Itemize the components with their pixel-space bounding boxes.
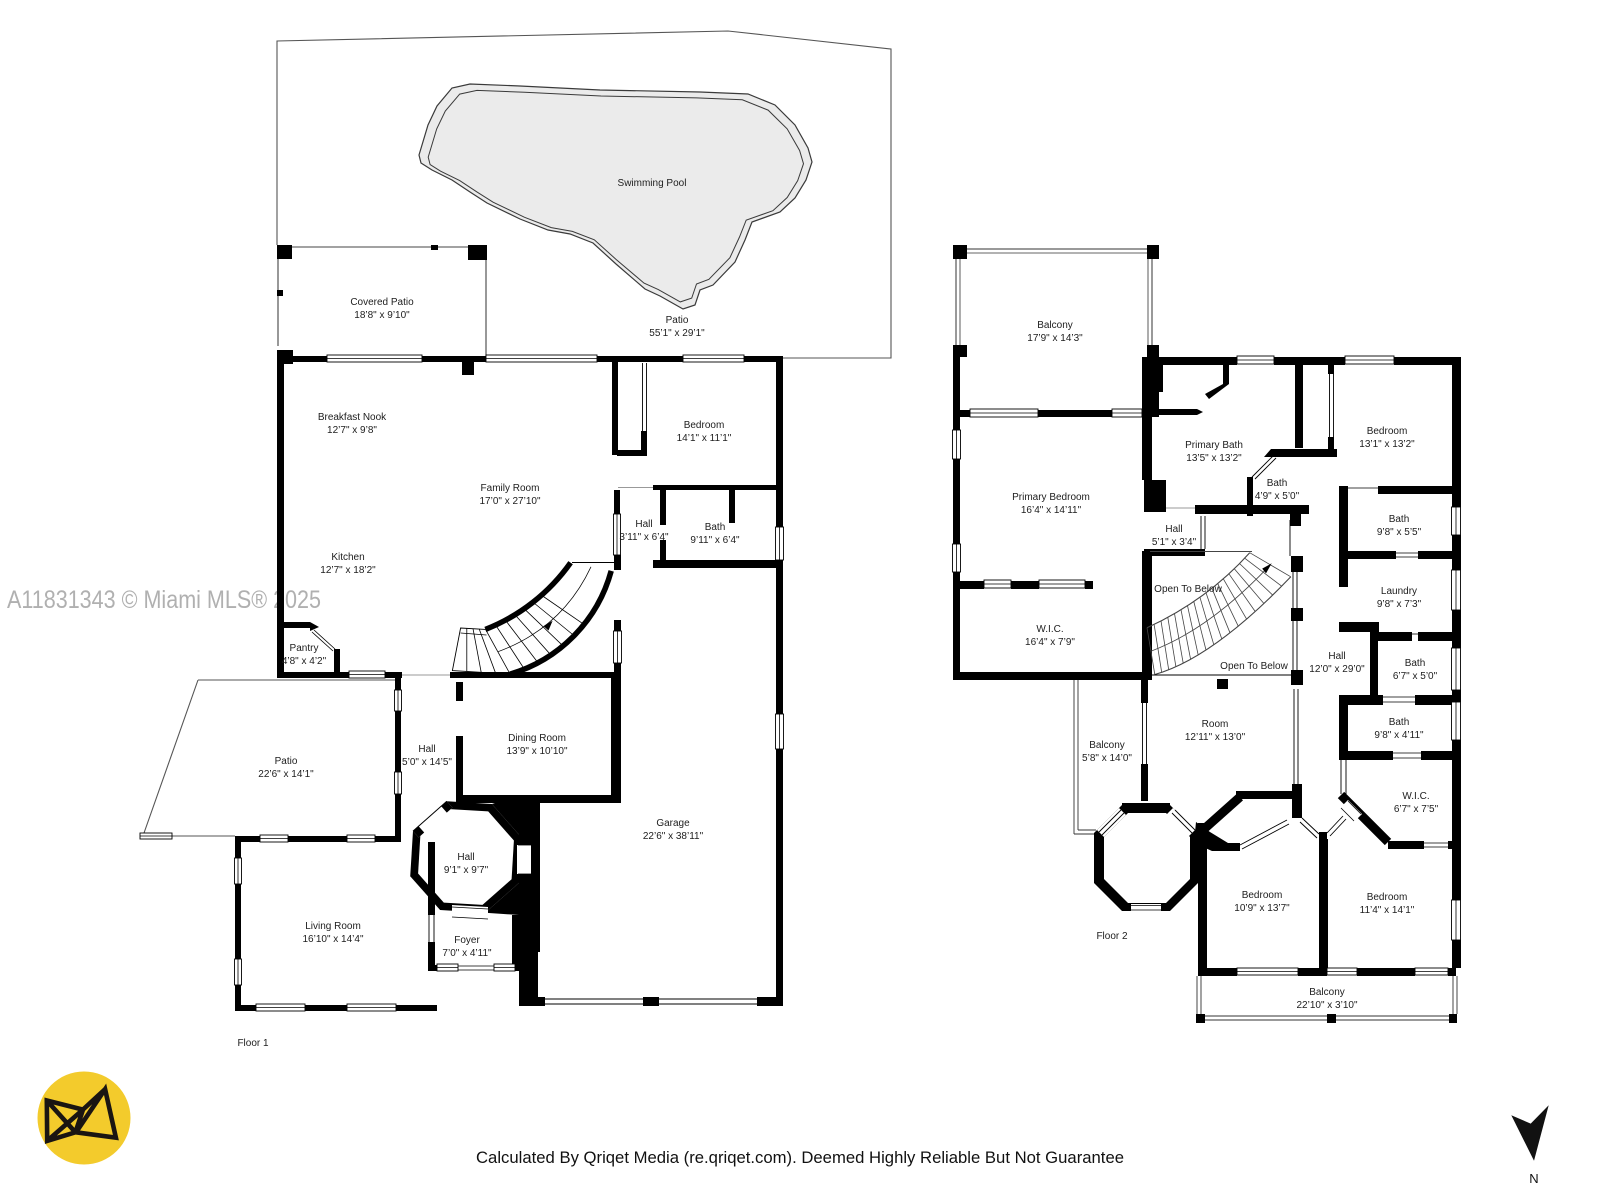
svg-text:Dining Room: Dining Room bbox=[508, 733, 566, 744]
svg-text:12’7" x 9’8": 12’7" x 9’8" bbox=[327, 425, 377, 436]
svg-text:Bedroom: Bedroom bbox=[1242, 890, 1283, 901]
svg-text:13’9" x 10’10": 13’9" x 10’10" bbox=[506, 746, 567, 757]
svg-text:Bath: Bath bbox=[1389, 717, 1410, 728]
svg-text:Primary Bedroom: Primary Bedroom bbox=[1012, 492, 1090, 503]
svg-text:Balcony: Balcony bbox=[1089, 740, 1125, 751]
svg-text:Covered Patio: Covered Patio bbox=[350, 297, 414, 308]
svg-text:16’10" x 14’4": 16’10" x 14’4" bbox=[302, 934, 363, 945]
svg-text:Bath: Bath bbox=[1389, 514, 1410, 525]
svg-text:Calculated By Qriqet Media (re: Calculated By Qriqet Media (re.qriqet.co… bbox=[476, 1149, 1124, 1167]
svg-text:12’0" x 29’0": 12’0" x 29’0" bbox=[1309, 664, 1365, 675]
svg-text:Room: Room bbox=[1202, 719, 1229, 730]
svg-text:5’0" x 14’5": 5’0" x 14’5" bbox=[402, 757, 452, 768]
svg-text:Bath: Bath bbox=[1267, 478, 1288, 489]
svg-text:11’4" x 14’1": 11’4" x 14’1" bbox=[1360, 905, 1415, 916]
svg-text:22’10" x 3’10": 22’10" x 3’10" bbox=[1296, 1000, 1357, 1011]
svg-text:16’4" x 14’11": 16’4" x 14’11" bbox=[1021, 505, 1082, 516]
svg-text:Hall: Hall bbox=[1165, 524, 1182, 535]
svg-text:10’9" x 13’7": 10’9" x 13’7" bbox=[1234, 903, 1290, 914]
svg-text:9’8" x 5’5": 9’8" x 5’5" bbox=[1377, 527, 1422, 538]
svg-text:Pantry: Pantry bbox=[290, 643, 319, 654]
svg-text:Patio: Patio bbox=[275, 756, 298, 767]
svg-text:Garage: Garage bbox=[656, 818, 690, 829]
svg-text:Bath: Bath bbox=[705, 522, 726, 533]
svg-text:9’8" x 4’11": 9’8" x 4’11" bbox=[1374, 730, 1424, 741]
svg-text:22’6" x 14’1": 22’6" x 14’1" bbox=[258, 769, 314, 780]
svg-text:A11831343 © Miami MLS® 2025: A11831343 © Miami MLS® 2025 bbox=[7, 586, 321, 614]
svg-text:55’1" x 29’1": 55’1" x 29’1" bbox=[649, 328, 705, 339]
svg-text:Kitchen: Kitchen bbox=[331, 552, 364, 563]
svg-text:12’11" x 13’0": 12’11" x 13’0" bbox=[1185, 732, 1246, 743]
svg-text:Hall: Hall bbox=[1328, 651, 1345, 662]
svg-text:Balcony: Balcony bbox=[1309, 987, 1345, 998]
svg-text:9’11" x 6’4": 9’11" x 6’4" bbox=[690, 535, 740, 546]
svg-text:Balcony: Balcony bbox=[1037, 320, 1073, 331]
svg-text:Bedroom: Bedroom bbox=[1367, 426, 1408, 437]
svg-text:W.I.C.: W.I.C. bbox=[1036, 624, 1063, 635]
svg-text:6’7" x 5’0": 6’7" x 5’0" bbox=[1393, 671, 1438, 682]
svg-text:Bedroom: Bedroom bbox=[684, 420, 725, 431]
svg-text:Open To Below: Open To Below bbox=[1154, 584, 1222, 595]
svg-text:12’7" x 18’2": 12’7" x 18’2" bbox=[320, 565, 376, 576]
svg-text:Laundry: Laundry bbox=[1381, 586, 1417, 597]
svg-text:7’0" x 4’11": 7’0" x 4’11" bbox=[442, 948, 492, 959]
svg-text:5’8" x 14’0": 5’8" x 14’0" bbox=[1082, 753, 1132, 764]
svg-text:N: N bbox=[1529, 1171, 1538, 1186]
svg-text:17’0" x 27’10": 17’0" x 27’10" bbox=[479, 496, 540, 507]
svg-text:5’1" x 3’4": 5’1" x 3’4" bbox=[1152, 537, 1197, 548]
svg-text:Hall: Hall bbox=[457, 852, 474, 863]
svg-text:Hall: Hall bbox=[418, 744, 435, 755]
svg-text:Primary Bath: Primary Bath bbox=[1185, 440, 1243, 451]
svg-text:16’4" x 7’9": 16’4" x 7’9" bbox=[1025, 637, 1075, 648]
svg-text:Patio: Patio bbox=[666, 315, 689, 326]
svg-text:22’6" x 38’11": 22’6" x 38’11" bbox=[643, 831, 704, 842]
svg-text:Foyer: Foyer bbox=[454, 935, 480, 946]
svg-text:W.I.C.: W.I.C. bbox=[1402, 791, 1429, 802]
svg-text:Bath: Bath bbox=[1405, 658, 1426, 669]
svg-text:17’9" x 14’3": 17’9" x 14’3" bbox=[1027, 333, 1083, 344]
svg-text:Hall: Hall bbox=[635, 519, 652, 530]
svg-text:9’1" x 9’7": 9’1" x 9’7" bbox=[444, 865, 489, 876]
svg-text:Swimming Pool: Swimming Pool bbox=[618, 178, 687, 189]
svg-text:14’1" x 11’1": 14’1" x 11’1" bbox=[677, 433, 732, 444]
svg-text:4’8" x 4’2": 4’8" x 4’2" bbox=[282, 656, 327, 667]
svg-text:13’1" x 13’2": 13’1" x 13’2" bbox=[1359, 439, 1415, 450]
svg-text:13’5" x 13’2": 13’5" x 13’2" bbox=[1186, 453, 1242, 464]
svg-text:Breakfast Nook: Breakfast Nook bbox=[318, 412, 387, 423]
svg-text:9’8" x 7’3": 9’8" x 7’3" bbox=[1377, 599, 1422, 610]
svg-text:6’7" x 7’5": 6’7" x 7’5" bbox=[1394, 804, 1439, 815]
svg-text:Floor 2: Floor 2 bbox=[1096, 931, 1128, 942]
svg-text:Bedroom: Bedroom bbox=[1367, 892, 1408, 903]
svg-text:Open To Below: Open To Below bbox=[1220, 661, 1288, 672]
svg-text:Floor 1: Floor 1 bbox=[237, 1038, 269, 1049]
svg-text:4’9" x 5’0": 4’9" x 5’0" bbox=[1255, 491, 1300, 502]
svg-text:18’8" x 9’10": 18’8" x 9’10" bbox=[354, 310, 410, 321]
svg-text:Family Room: Family Room bbox=[481, 483, 540, 494]
svg-text:Living Room: Living Room bbox=[305, 921, 361, 932]
